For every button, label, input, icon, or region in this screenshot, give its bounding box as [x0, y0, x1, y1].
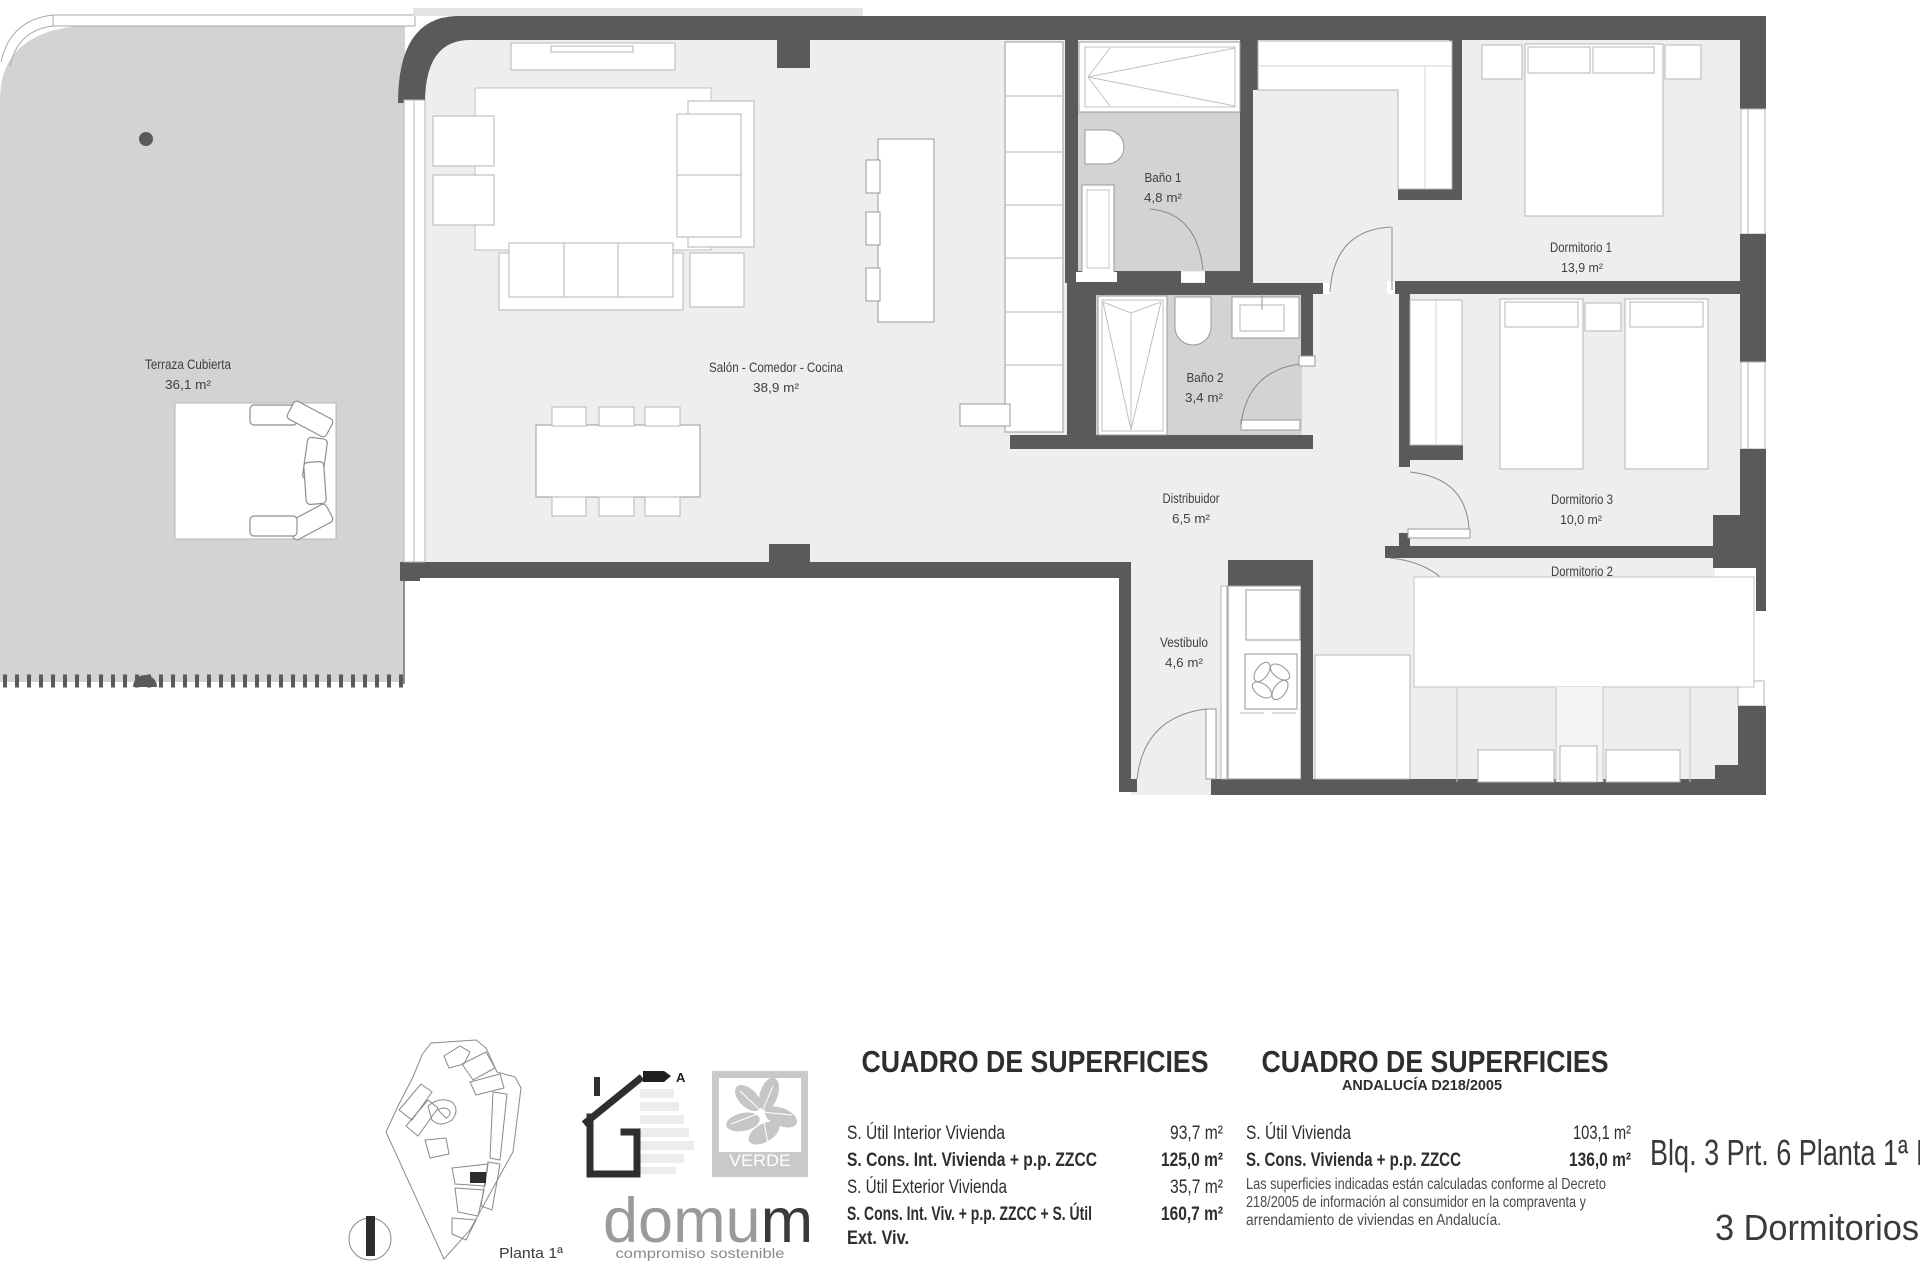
svg-text:Salón - Comedor - Cocina: Salón - Comedor - Cocina	[709, 359, 843, 375]
svg-text:CUADRO DE SUPERFICIES: CUADRO DE SUPERFICIES	[1262, 1044, 1609, 1079]
svg-text:Iz: Iz	[1915, 1132, 1920, 1173]
svg-text:10,0 m²: 10,0 m²	[1560, 512, 1603, 527]
svg-text:Distribuidor: Distribuidor	[1163, 491, 1220, 506]
svg-text:S. Cons. Vivienda + p.p. ZZCC: S. Cons. Vivienda + p.p. ZZCC	[1246, 1150, 1461, 1171]
svg-text:S. Útil Interior Vivienda: S. Útil Interior Vivienda	[847, 1122, 1005, 1144]
svg-text:160,7 m²: 160,7 m²	[1161, 1204, 1223, 1225]
svg-text:38,9 m²: 38,9 m²	[753, 380, 800, 395]
svg-text:Baño 2: Baño 2	[1187, 370, 1224, 385]
svg-text:S. Cons. Int. Viv. + p.p. ZZCC: S. Cons. Int. Viv. + p.p. ZZCC + S. Útil	[847, 1203, 1092, 1225]
svg-text:136,0 m²: 136,0 m²	[1569, 1150, 1631, 1171]
svg-text:13,9 m²: 13,9 m²	[1561, 260, 1604, 275]
svg-text:35,7 m²: 35,7 m²	[1170, 1177, 1223, 1198]
svg-text:Dormitorio 1: Dormitorio 1	[1550, 239, 1612, 255]
svg-text:arrendamiento de viviendas en: arrendamiento de viviendas en Andalucía.	[1246, 1212, 1501, 1229]
svg-text:Blq. 3 Prt. 6 Planta 1ª: Blq. 3 Prt. 6 Planta 1ª	[1650, 1132, 1909, 1173]
svg-text:compromiso sostenible: compromiso sostenible	[616, 1245, 785, 1261]
svg-text:VERDE: VERDE	[729, 1151, 791, 1170]
svg-text:218/2005 de información al con: 218/2005 de información al consumidor en…	[1246, 1194, 1586, 1211]
svg-text:Dormitorio 3: Dormitorio 3	[1551, 491, 1613, 507]
svg-text:S. Útil Vivienda: S. Útil Vivienda	[1246, 1122, 1351, 1144]
svg-text:Vestibulo: Vestibulo	[1160, 635, 1208, 650]
svg-text:36,1 m²: 36,1 m²	[165, 377, 212, 392]
svg-text:Terraza Cubierta: Terraza Cubierta	[145, 356, 231, 372]
svg-text:3 Dormitorios: 3 Dormitorios	[1715, 1207, 1919, 1248]
svg-text:A: A	[676, 1070, 686, 1085]
svg-text:4,8 m²: 4,8 m²	[1144, 190, 1183, 205]
svg-text:4,6 m²: 4,6 m²	[1165, 655, 1204, 670]
svg-text:93,7 m²: 93,7 m²	[1170, 1123, 1223, 1144]
svg-text:3,4 m²: 3,4 m²	[1185, 390, 1224, 405]
svg-text:Las superficies indicadas está: Las superficies indicadas están calculad…	[1246, 1176, 1606, 1193]
svg-text:CUADRO DE SUPERFICIES: CUADRO DE SUPERFICIES	[862, 1044, 1209, 1079]
svg-text:Ext. Viv.: Ext. Viv.	[847, 1228, 909, 1249]
svg-text:S. Cons. Int. Vivienda + p.p.: S. Cons. Int. Vivienda + p.p. ZZCC	[847, 1150, 1097, 1171]
svg-text:Baño 1: Baño 1	[1145, 170, 1182, 185]
svg-text:ANDALUCÍA D218/2005: ANDALUCÍA D218/2005	[1342, 1077, 1502, 1094]
svg-text:Dormitorio 2: Dormitorio 2	[1551, 563, 1613, 579]
svg-text:6,5 m²: 6,5 m²	[1172, 511, 1211, 526]
svg-text:125,0 m²: 125,0 m²	[1161, 1150, 1223, 1171]
svg-text:S. Útil Exterior Vivienda: S. Útil Exterior Vivienda	[847, 1176, 1007, 1198]
svg-text:103,1 m²: 103,1 m²	[1573, 1123, 1631, 1144]
svg-text:Planta 1ª: Planta 1ª	[499, 1245, 563, 1262]
